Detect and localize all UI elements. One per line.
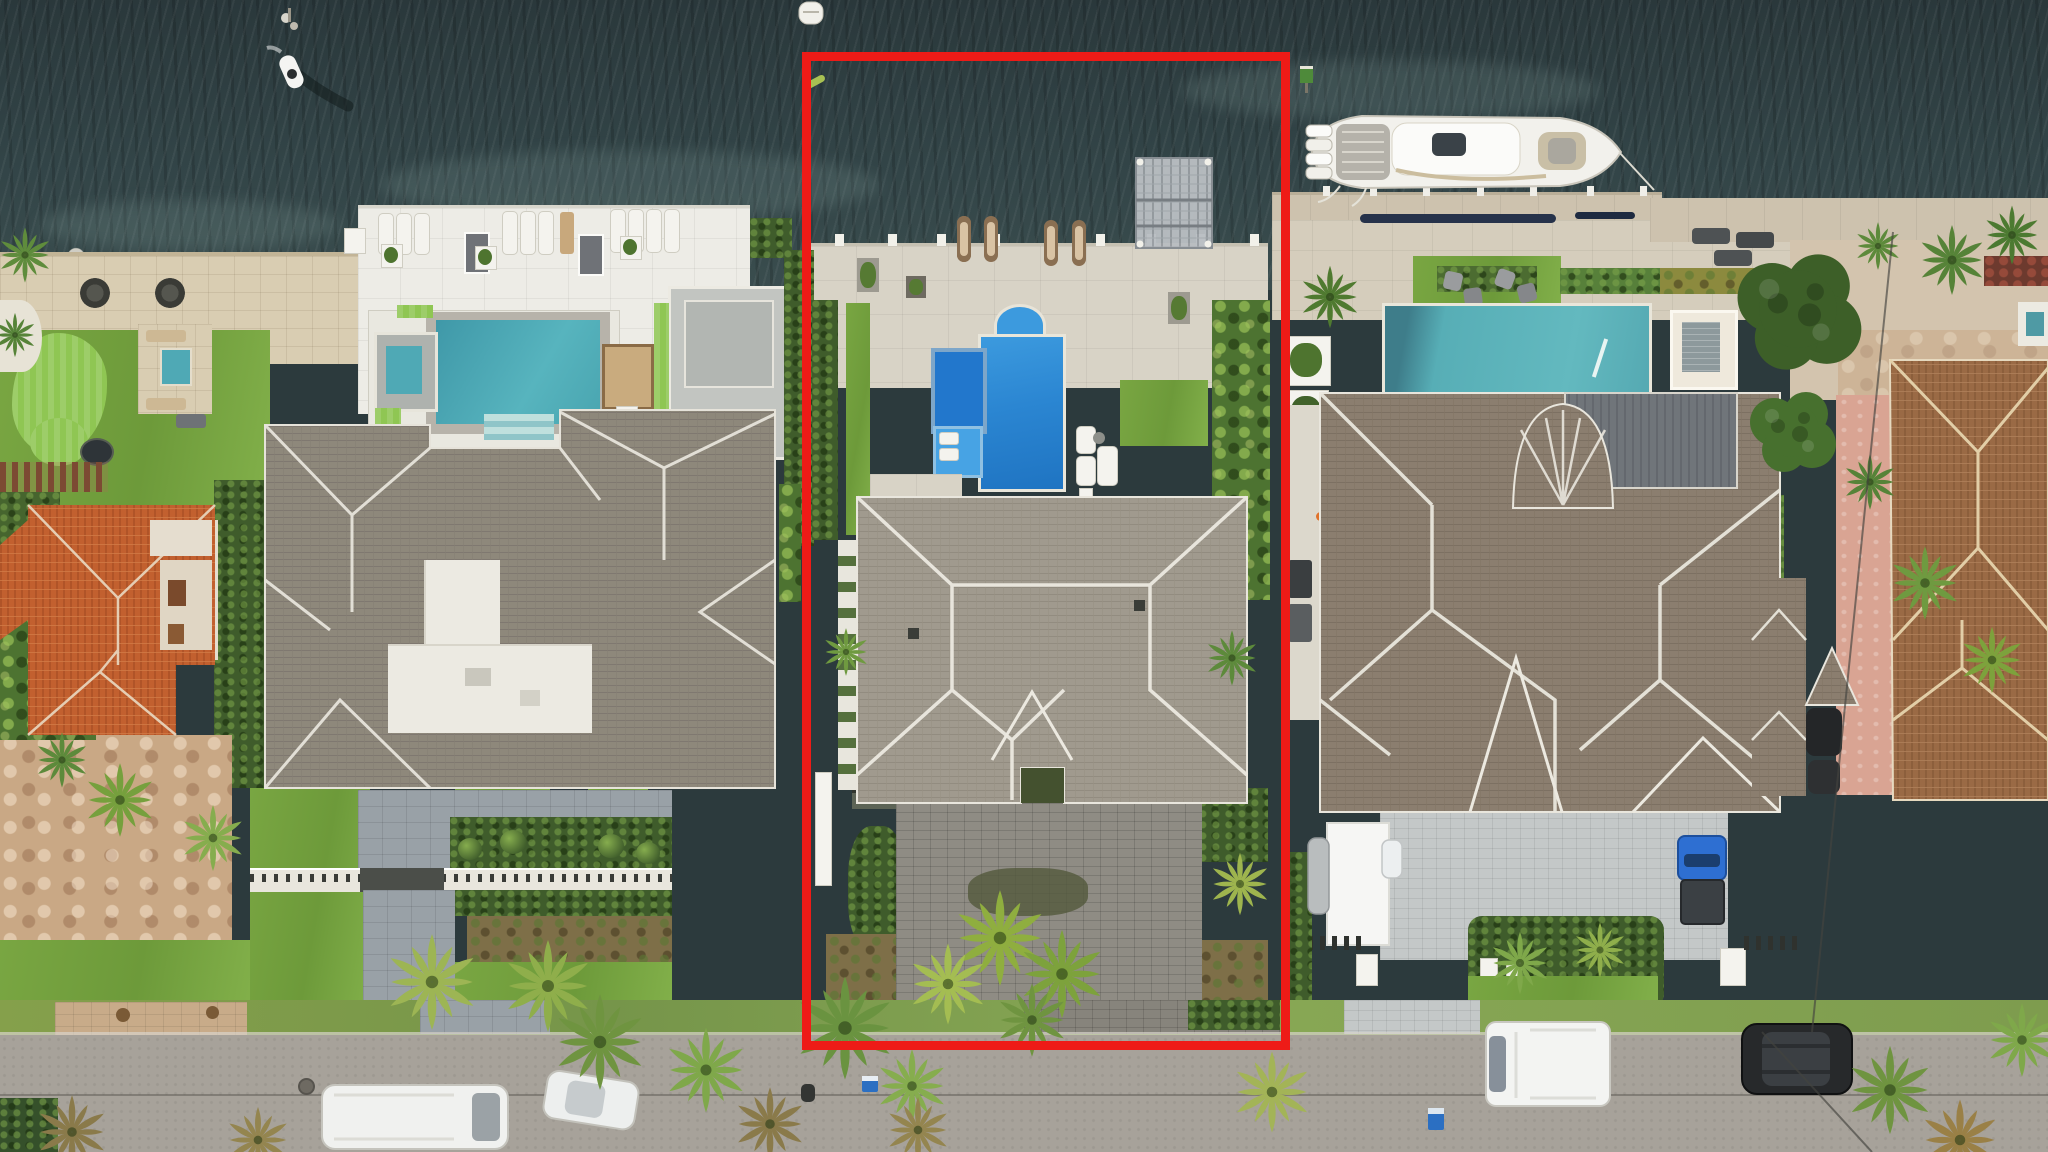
- left-walkway: [363, 890, 455, 1016]
- right-pool: [1382, 303, 1652, 399]
- left-house-roof: [265, 410, 775, 788]
- neighbor-left-courtyard: [0, 735, 232, 945]
- salmon-courtyard: [1836, 395, 1896, 795]
- neighbor-left-walls: [150, 520, 218, 660]
- parterre-garden: [450, 817, 672, 871]
- left-pool-steps: [484, 414, 554, 440]
- dock-kayaks: [1360, 214, 1556, 223]
- left-pool: [436, 320, 600, 424]
- aerial-photo: [0, 0, 2048, 1152]
- burgundy-hedge: [1984, 256, 2048, 286]
- property-highlight-outline: [802, 52, 1290, 1050]
- manhole: [298, 1078, 315, 1095]
- left-daybed: [602, 344, 654, 410]
- carport-canopy: [1326, 822, 1390, 946]
- far-right-house-roof: [1890, 360, 2048, 800]
- left-driveway-gate: [360, 868, 444, 892]
- pergola: [0, 462, 108, 492]
- patio-dining-set: [80, 278, 110, 308]
